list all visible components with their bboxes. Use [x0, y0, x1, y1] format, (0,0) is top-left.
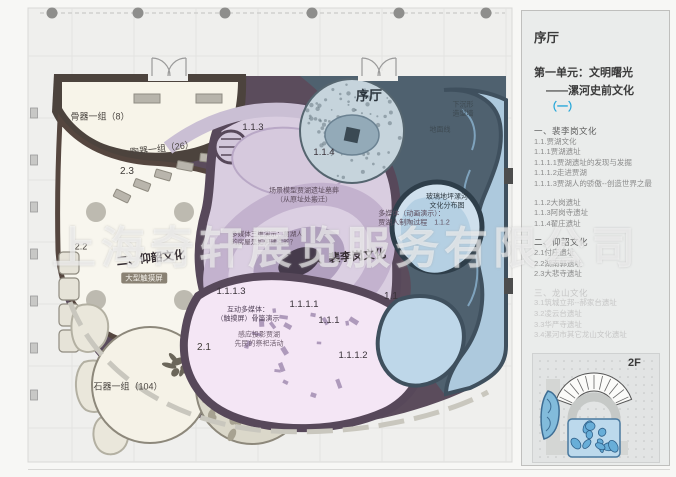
outline-item: 2.3大悲寺遗址 [534, 269, 659, 280]
outline-item: 3.4漯河市其它龙山文化遗址 [534, 330, 659, 341]
floor-locator-map [532, 353, 660, 463]
outline-item: 1.1.1贾湖遗址 [534, 147, 659, 158]
unit-number-highlight: （一） [546, 101, 579, 113]
floor-tag: 2F [628, 357, 641, 369]
unit-title-line2: ——漯河史前文化（一） [546, 82, 659, 114]
outline-item: 1.1.1.3贾湖人的骄傲--创造世界之最 [534, 179, 659, 190]
outline-item: 二、仰韶文化 [534, 237, 659, 248]
outline-item: 1.1.3阿岗寺遗址 [534, 208, 659, 219]
outline-item: 1.1.1.2走进贾湖 [534, 168, 659, 179]
outline-item: 1.1.2大岗遗址 [534, 198, 659, 209]
sidebar-panel: 序厅 第一单元：文明曙光 ——漯河史前文化（一） 一、裴李岗文化1.1.贾湖文化… [521, 10, 670, 466]
floor-plan-page: 骨器一组（8）陶器一组（26）2.32.2二、仰韶文化大型触摸屏石器一组（104… [0, 0, 676, 477]
outline-item: 一、裴李岗文化 [534, 126, 659, 137]
sidebar-hall-title: 序厅 [534, 27, 659, 46]
exhibit-outline-list: 一、裴李岗文化1.1.贾湖文化1.1.1贾湖遗址1.1.1.1贾湖遗址的发现与发… [534, 126, 659, 341]
outline-item: 3.1筑城立邦--郝家台遗址 [534, 298, 659, 309]
outline-item: 1.1.贾湖文化 [534, 137, 659, 148]
page-divider [28, 469, 670, 470]
outline-item: 3.3华严寺遗址 [534, 320, 659, 331]
unit-title-line1: 第一单元：文明曙光 [534, 64, 659, 80]
outline-item: 3.2凌云台遗址 [534, 309, 659, 320]
outline-item: 1.1.1.1贾湖遗址的发现与发掘 [534, 158, 659, 169]
outline-item: 2.2湖南郭遗址 [534, 259, 659, 270]
outline-item: 三、龙山文化 [534, 288, 659, 299]
outline-item: 1.1.4翟庄遗址 [534, 219, 659, 230]
outline-item: 2.1付庄遗址 [534, 248, 659, 259]
